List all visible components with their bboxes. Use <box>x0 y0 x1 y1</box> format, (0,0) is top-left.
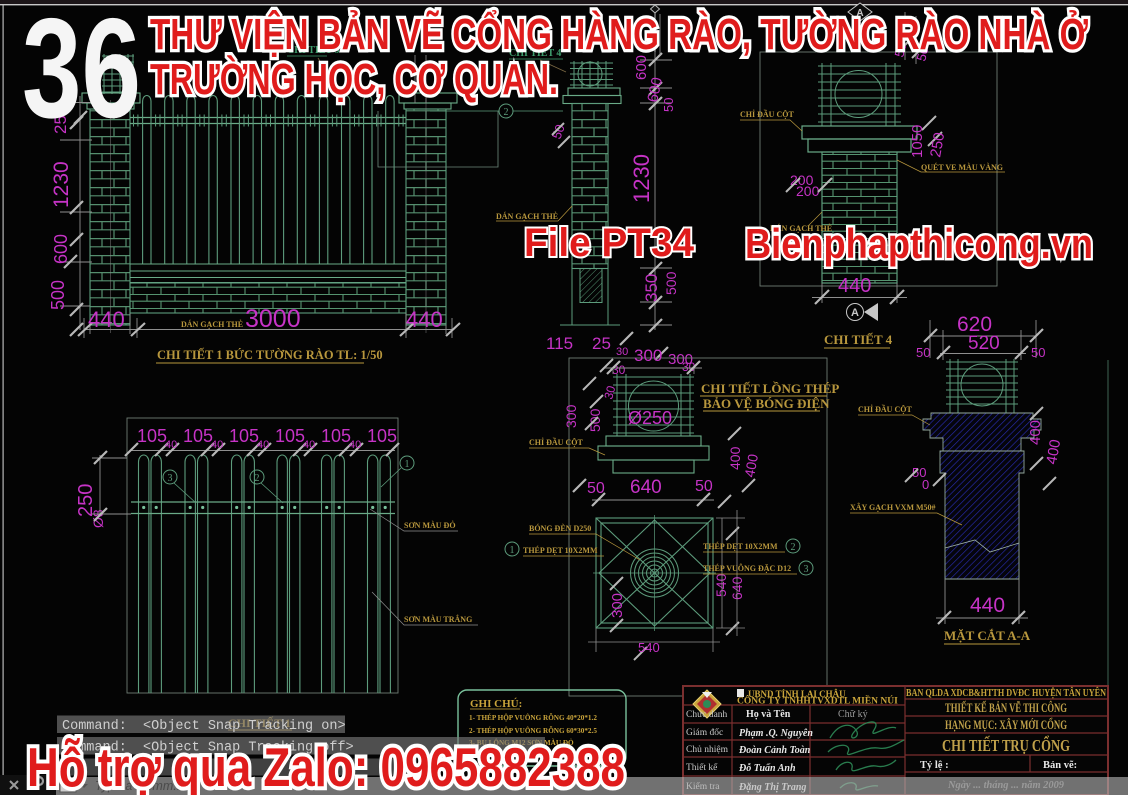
svg-text:30: 30 <box>616 346 628 358</box>
svg-text:105: 105 <box>137 426 167 446</box>
svg-text:105: 105 <box>183 426 213 446</box>
svg-text:40: 40 <box>303 439 315 451</box>
svg-text:540: 540 <box>713 573 729 597</box>
svg-text:HẠNG MỤC: XÂY MỚI CỔNG: HẠNG MỤC: XÂY MỚI CỔNG <box>945 717 1067 732</box>
svg-text:1: 1 <box>405 459 410 470</box>
svg-text:2: 2 <box>791 542 796 553</box>
svg-text:115: 115 <box>546 334 573 353</box>
svg-text:600: 600 <box>51 234 71 264</box>
svg-text:300: 300 <box>609 593 626 618</box>
svg-text:105: 105 <box>275 426 305 446</box>
svg-text:THÉP VUÔNG ĐẶC D12: THÉP VUÔNG ĐẶC D12 <box>703 563 791 573</box>
svg-text:BAN QLDA XDCB&HTTH DVĐC HUYỆN: BAN QLDA XDCB&HTTH DVĐC HUYỆN TÂN UYÊN <box>906 686 1107 699</box>
svg-text:520: 520 <box>968 333 1000 354</box>
svg-text:105: 105 <box>321 426 351 446</box>
svg-text:BẢO VỆ BÓNG ĐIỆN: BẢO VỆ BÓNG ĐIỆN <box>703 396 830 411</box>
svg-text:300: 300 <box>563 404 579 428</box>
svg-text:A: A <box>851 307 859 319</box>
svg-text:440: 440 <box>88 307 125 332</box>
svg-text:CHI TIẾT 4: CHI TIẾT 4 <box>824 332 893 347</box>
svg-text:Bản vẽ:: Bản vẽ: <box>1043 760 1077 771</box>
svg-text:THÉP DẸT 10X2MM: THÉP DẸT 10X2MM <box>523 545 598 555</box>
svg-text:DÁN GẠCH THẺ: DÁN GẠCH THẺ <box>496 211 558 221</box>
svg-text:CHỈ ĐẦU CỘT: CHỈ ĐẦU CỘT <box>858 404 912 414</box>
svg-text:400: 400 <box>727 446 743 470</box>
svg-text:300: 300 <box>634 346 662 365</box>
svg-text:SƠN MÀU TRẮNG: SƠN MÀU TRẮNG <box>404 614 472 624</box>
svg-text:Thiết kế: Thiết kế <box>686 762 718 773</box>
svg-text:Bienphapthicong.vn: Bienphapthicong.vn <box>745 220 1093 267</box>
svg-text:CHỈ ĐẦU CỘT: CHỈ ĐẦU CỘT <box>529 437 583 447</box>
svg-text:105: 105 <box>229 426 259 446</box>
svg-text:105: 105 <box>367 426 397 446</box>
svg-text:50: 50 <box>695 478 713 495</box>
svg-text:25: 25 <box>592 334 611 353</box>
svg-text:200: 200 <box>796 183 820 199</box>
svg-text:40: 40 <box>349 439 361 451</box>
svg-text:500: 500 <box>48 280 68 310</box>
svg-text:36: 36 <box>22 0 141 148</box>
svg-text:500: 500 <box>663 271 679 295</box>
svg-text:40: 40 <box>165 439 177 451</box>
svg-text:CHỈ ĐẦU CỘT: CHỈ ĐẦU CỘT <box>740 109 794 119</box>
svg-text:Chức danh: Chức danh <box>686 710 728 720</box>
svg-text:50: 50 <box>916 345 930 360</box>
svg-text:50: 50 <box>1031 345 1045 360</box>
svg-text:440: 440 <box>838 275 871 297</box>
svg-text:440: 440 <box>406 307 443 332</box>
svg-text:Đoàn Cảnh Toàn: Đoàn Cảnh Toàn <box>738 745 811 756</box>
svg-text:Chủ nhiệm: Chủ nhiệm <box>686 745 729 755</box>
svg-text:0: 0 <box>922 477 929 492</box>
svg-text:File PT34: File PT34 <box>524 221 695 265</box>
svg-text:Đỗ Tuấn Anh: Đỗ Tuấn Anh <box>738 763 796 774</box>
svg-text:1- THÉP HỘP VUÔNG RỖNG 40*20*1: 1- THÉP HỘP VUÔNG RỖNG 40*20*1.2 <box>469 712 597 722</box>
svg-text:Command: <Object Snap Trackin: Command: <Object Snap Tracking on> <box>62 719 346 734</box>
svg-text:2: 2 <box>504 107 509 118</box>
svg-text:GHI CHÚ:: GHI CHÚ: <box>470 698 522 710</box>
svg-text:BÓNG ĐÈN D250: BÓNG ĐÈN D250 <box>529 523 591 533</box>
svg-text:CHI TIẾT LỒNG THÉP: CHI TIẾT LỒNG THÉP <box>701 381 839 396</box>
svg-text:3: 3 <box>804 564 809 575</box>
svg-text:THÉP DẸT 10X2MM: THÉP DẸT 10X2MM <box>703 541 778 551</box>
svg-text:2: 2 <box>255 473 260 484</box>
svg-text:THƯ VIỆN BẢN VẼ CỔNG HÀNG RÀO,: THƯ VIỆN BẢN VẼ CỔNG HÀNG RÀO, TƯỜNG RÀO… <box>150 8 1088 59</box>
svg-text:Giám đốc: Giám đốc <box>686 727 723 738</box>
svg-text:1050: 1050 <box>909 125 926 158</box>
svg-text:50: 50 <box>661 98 676 112</box>
svg-text:1230: 1230 <box>50 161 73 208</box>
svg-text:QUÉT VE MÀU VÀNG: QUÉT VE MÀU VÀNG <box>921 162 1003 172</box>
svg-text:540: 540 <box>638 640 660 655</box>
svg-text:40: 40 <box>257 439 269 451</box>
svg-text:XÂY GẠCH VXM M50#: XÂY GẠCH VXM M50# <box>850 502 936 512</box>
svg-text:1: 1 <box>510 545 515 556</box>
svg-text:THIẾT KẾ BẢN VẼ THI CÔNG: THIẾT KẾ BẢN VẼ THI CÔNG <box>945 700 1067 715</box>
svg-text:TRƯỜNG HỌC, CƠ QUAN.: TRƯỜNG HỌC, CƠ QUAN. <box>150 54 558 104</box>
svg-text:30: 30 <box>612 363 626 377</box>
svg-text:3000: 3000 <box>245 305 301 333</box>
svg-text:2- THÉP HỘP VUÔNG RỖNG 60*30*2: 2- THÉP HỘP VUÔNG RỖNG 60*30*2.5 <box>469 725 597 735</box>
svg-text:Phạm .Q. Nguyên: Phạm .Q. Nguyên <box>739 728 813 739</box>
svg-text:CHI TIẾT TRỤ CỔNG: CHI TIẾT TRỤ CỔNG <box>942 735 1070 755</box>
svg-text:1230: 1230 <box>629 154 654 203</box>
svg-text:3: 3 <box>168 473 173 484</box>
svg-text:MẶT CẮT A-A: MẶT CẮT A-A <box>944 628 1031 643</box>
svg-text:SƠN MÀU ĐỎ: SƠN MÀU ĐỎ <box>404 520 456 530</box>
svg-text:CHI TIẾT 1 BỨC TƯỜNG RÀO TL: 1: CHI TIẾT 1 BỨC TƯỜNG RÀO TL: 1/50 <box>157 347 383 362</box>
svg-text:Tỷ lệ :: Tỷ lệ : <box>920 760 949 771</box>
svg-text:Ø250: Ø250 <box>628 408 672 428</box>
svg-text:40: 40 <box>211 439 223 451</box>
svg-text:350: 350 <box>642 274 661 302</box>
svg-text:Chữ ký: Chữ ký <box>838 709 868 720</box>
svg-text:400: 400 <box>1027 420 1044 445</box>
svg-text:DÁN GẠCH THẺ: DÁN GẠCH THẺ <box>181 319 243 329</box>
svg-text:Hỗ trợ qua Zalo: 0965882388: Hỗ trợ qua Zalo: 0965882388 <box>27 736 625 795</box>
svg-text:640: 640 <box>630 477 662 498</box>
svg-text:Họ và Tên: Họ và Tên <box>746 709 791 720</box>
svg-text:440: 440 <box>970 594 1005 617</box>
